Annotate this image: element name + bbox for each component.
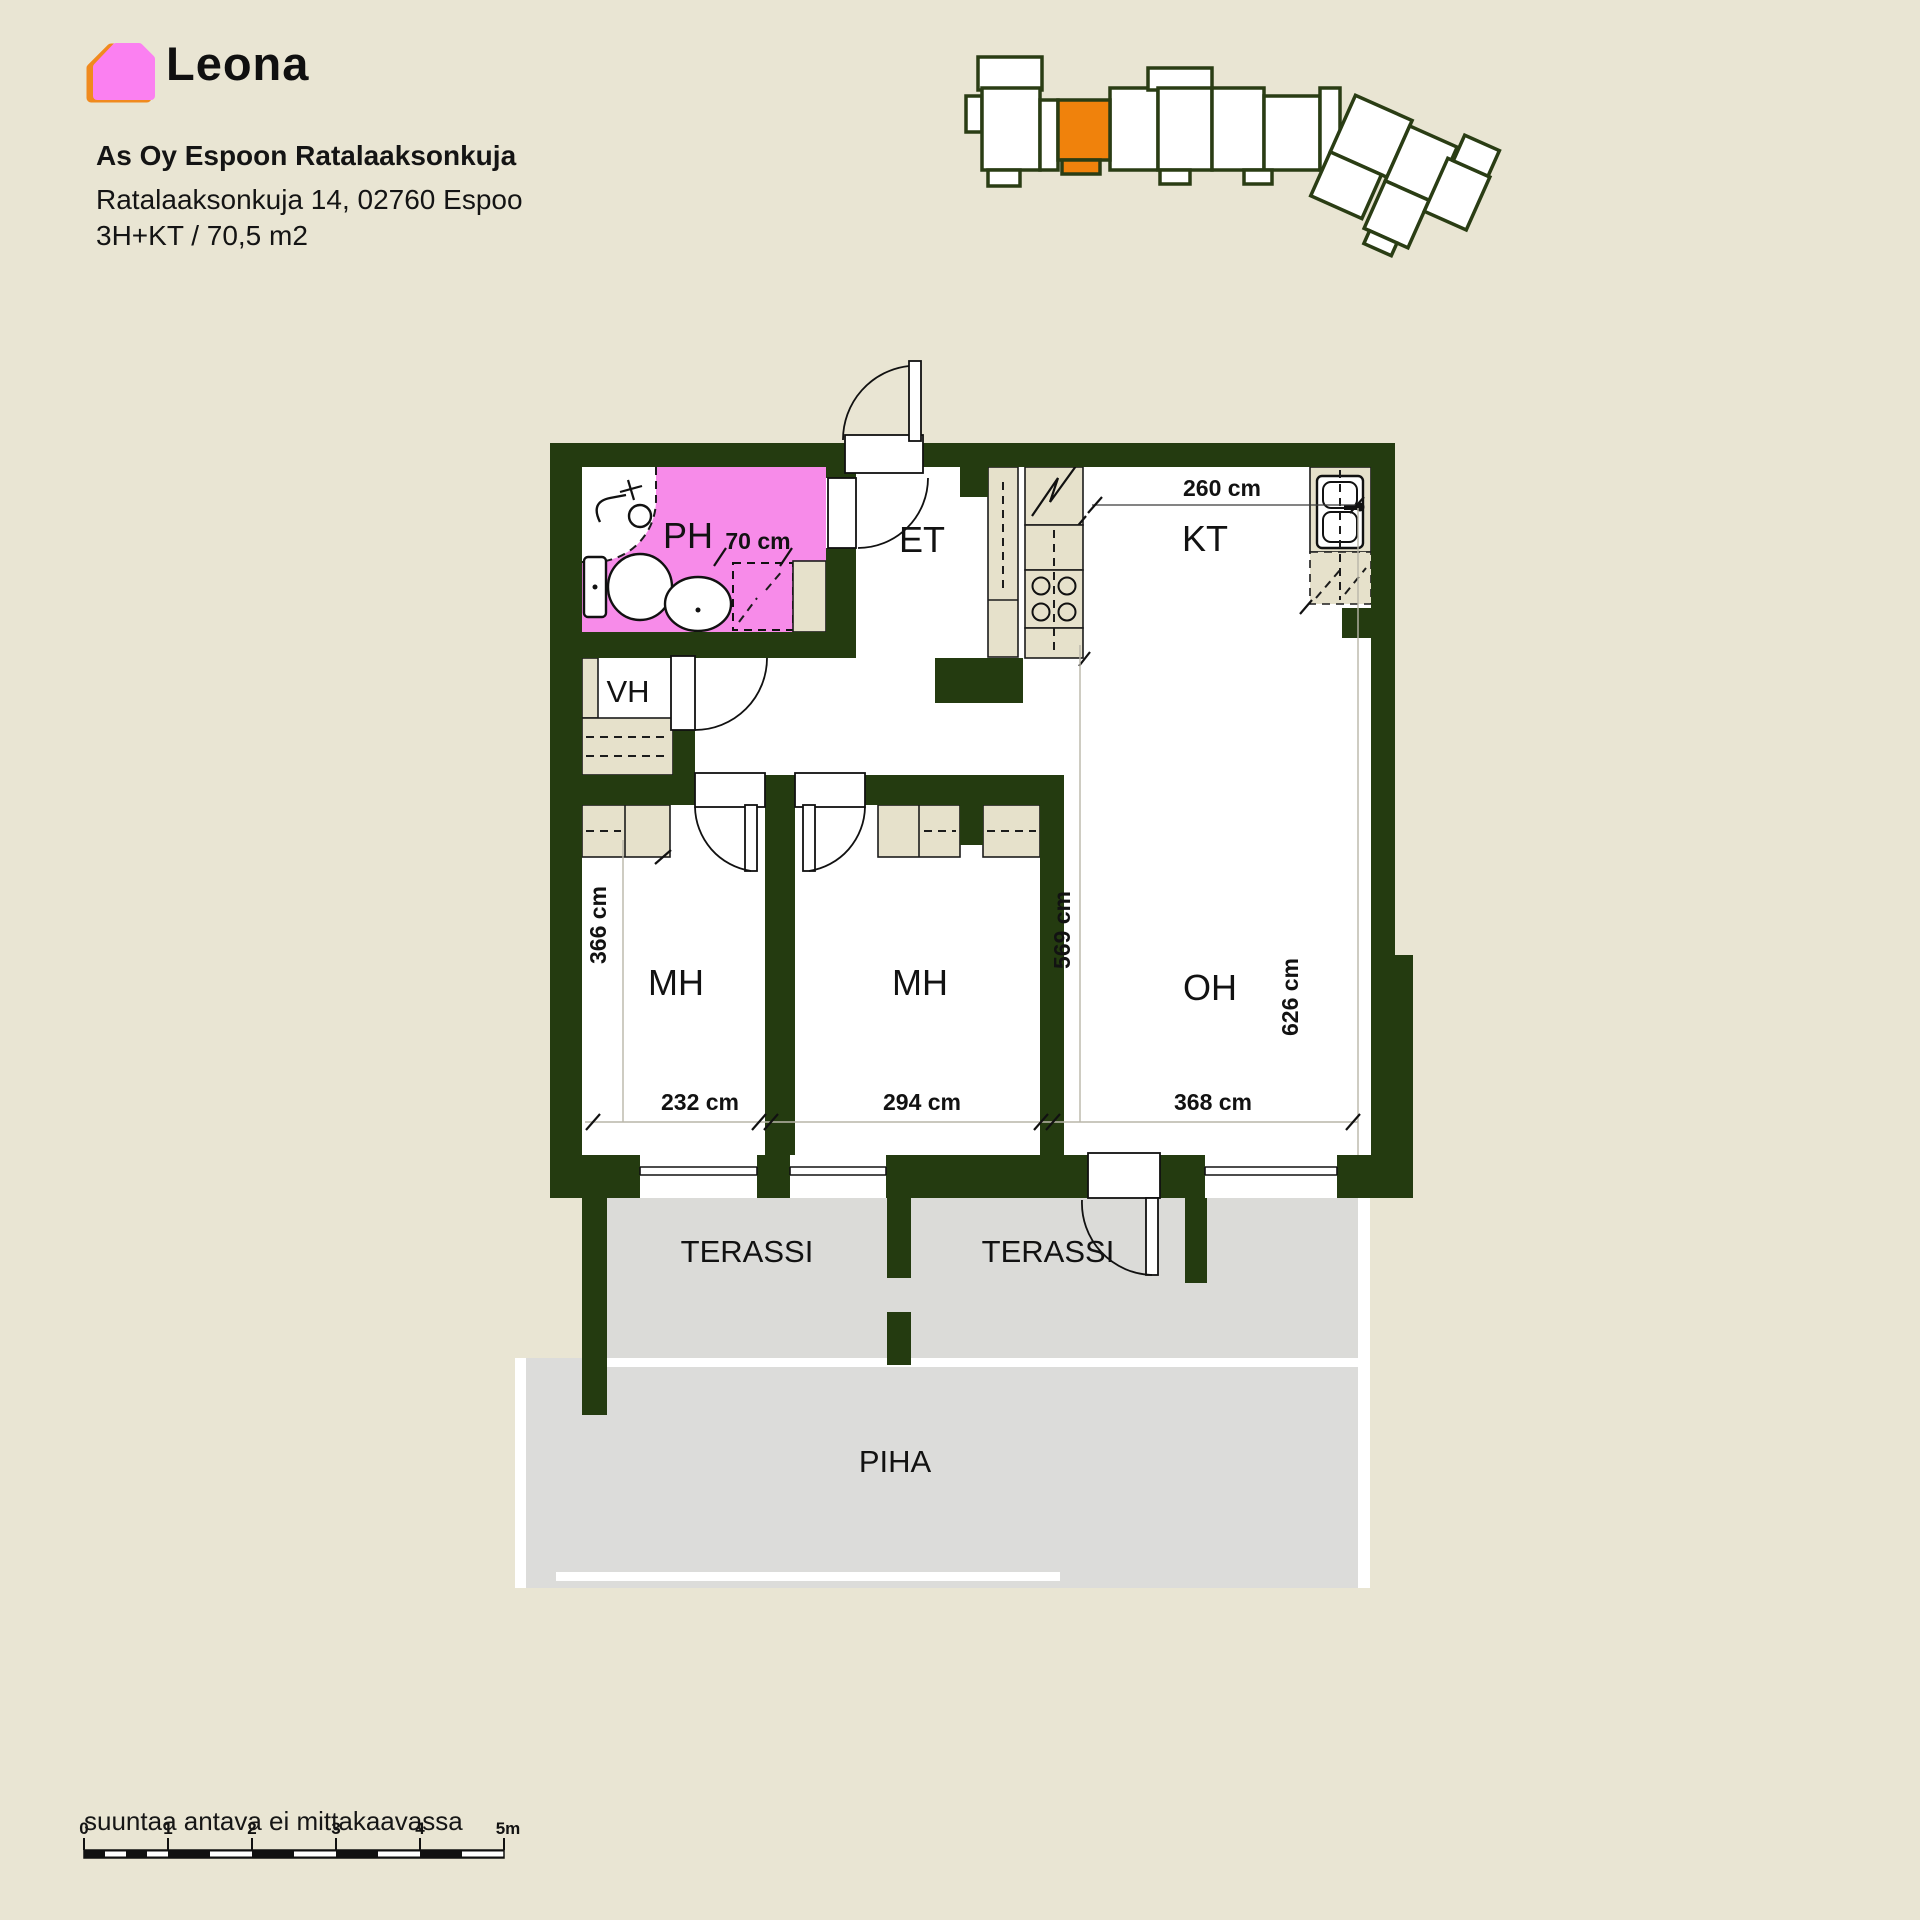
room-label-terrace1: TERASSI bbox=[681, 1234, 814, 1269]
dim-bedroom1-depth: 366 cm bbox=[585, 886, 611, 964]
floor-plan: PH 70 cm ET KT 260 cm VH MH MH OH 366 cm… bbox=[515, 361, 1413, 1588]
room-label-closet: VH bbox=[606, 674, 649, 709]
apartment-type: 3H+KT / 70,5 m2 bbox=[96, 220, 308, 252]
disclaimer-note: suuntaa antava ei mittakaavassa bbox=[84, 1806, 463, 1837]
terrace-floor bbox=[605, 1198, 1358, 1365]
address: Ratalaaksonkuja 14, 02760 Espoo bbox=[96, 184, 523, 216]
bathroom-sink bbox=[665, 577, 731, 631]
kitchen-cabinet-left bbox=[988, 467, 1018, 657]
window-bedroom2 bbox=[790, 1155, 886, 1198]
dim-living-width: 368 cm bbox=[1174, 1089, 1252, 1115]
terrace-yard-divider-line bbox=[607, 1358, 1358, 1367]
site-plan bbox=[966, 57, 1501, 279]
plan-canvas: PH 70 cm ET KT 260 cm VH MH MH OH 366 cm… bbox=[0, 0, 1920, 1920]
bathroom-cabinet bbox=[793, 561, 826, 632]
logo-text: Leona bbox=[166, 36, 309, 91]
dim-shower-width: 70 cm bbox=[725, 528, 790, 554]
toilet bbox=[584, 554, 672, 620]
room-label-terrace2: TERASSI bbox=[982, 1234, 1115, 1269]
bedroom2-wardrobe bbox=[878, 805, 1040, 857]
window-living bbox=[1205, 1155, 1337, 1198]
entry-door bbox=[843, 361, 923, 473]
logo-house-icon bbox=[91, 47, 151, 98]
bedroom1-wardrobe bbox=[582, 805, 671, 864]
dim-bedroom2-depth: 569 cm bbox=[1049, 891, 1075, 969]
scale-tick-5: 5m bbox=[496, 1819, 521, 1838]
room-label-bathroom: PH bbox=[663, 515, 713, 556]
room-label-bedroom2: MH bbox=[892, 962, 948, 1003]
kitchen-sink bbox=[1310, 467, 1371, 552]
page-title: As Oy Espoon Ratalaaksonkuja bbox=[96, 140, 516, 172]
hall-wardrobe bbox=[582, 718, 673, 775]
room-label-living: OH bbox=[1183, 967, 1237, 1008]
closet-shelf bbox=[582, 658, 598, 718]
site-plan-highlighted-unit bbox=[1058, 100, 1110, 174]
room-label-bedroom1: MH bbox=[648, 962, 704, 1003]
dim-kitchen-width: 260 cm bbox=[1183, 475, 1261, 501]
dim-bedroom2-width: 294 cm bbox=[883, 1089, 961, 1115]
yard-border-right bbox=[1358, 1198, 1370, 1588]
dim-living-depth: 626 cm bbox=[1277, 958, 1303, 1036]
yard-border-bottom bbox=[556, 1572, 1060, 1581]
kitchen-fridge bbox=[1025, 466, 1086, 528]
dim-bedroom1-width: 232 cm bbox=[661, 1089, 739, 1115]
yard-border-left bbox=[515, 1358, 526, 1588]
site-plan-units bbox=[966, 57, 1501, 279]
yard-floor bbox=[515, 1358, 1358, 1588]
room-label-yard: PIHA bbox=[859, 1444, 932, 1479]
room-label-entry: ET bbox=[899, 519, 945, 560]
room-label-kitchen: KT bbox=[1182, 518, 1228, 559]
window-bedroom1 bbox=[640, 1155, 757, 1198]
